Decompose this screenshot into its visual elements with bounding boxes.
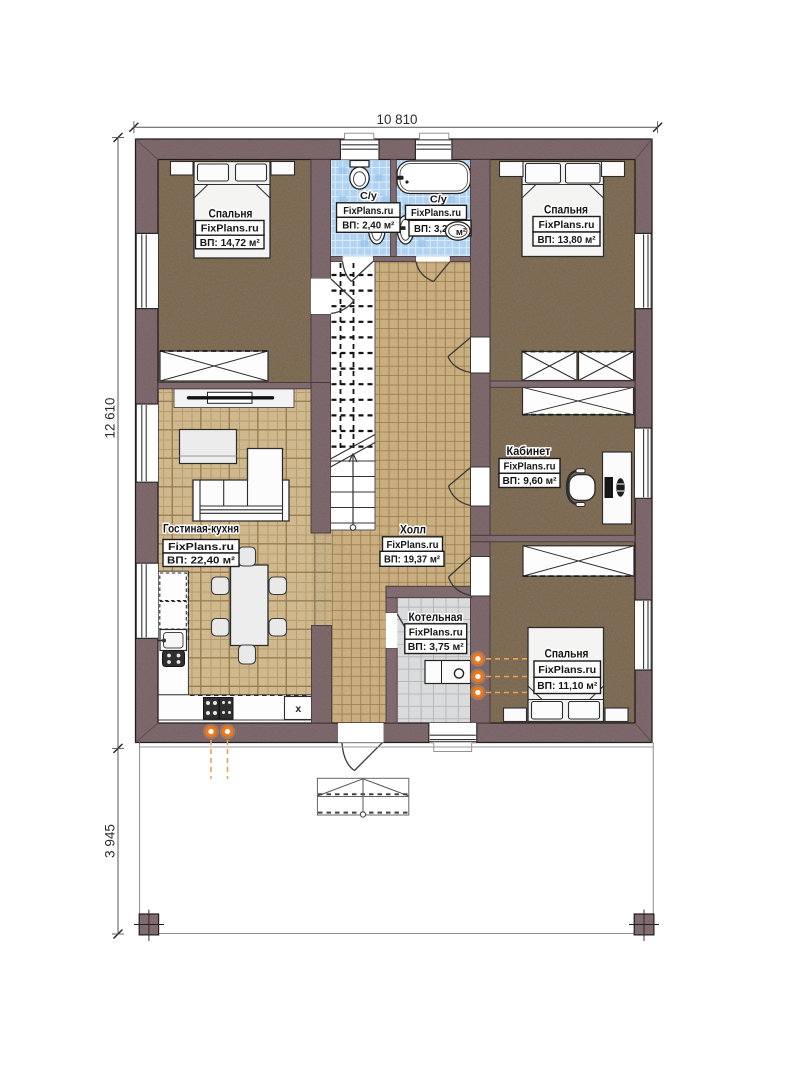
svg-text:x: x: [295, 703, 301, 715]
svg-text:FixPlans.ru: FixPlans.ru: [504, 462, 556, 473]
svg-text:FixPlans.ru: FixPlans.ru: [387, 540, 439, 551]
svg-text:С/у: С/у: [430, 194, 447, 206]
svg-text:3 945: 3 945: [103, 824, 118, 858]
svg-text:ВП: 22,40 м²: ВП: 22,40 м²: [167, 556, 236, 567]
svg-text:ВП: 11,10 м²: ВП: 11,10 м²: [537, 681, 598, 692]
svg-text:FixPlans.ru: FixPlans.ru: [168, 542, 234, 553]
svg-text:ВП: 9,60 м²: ВП: 9,60 м²: [503, 476, 558, 487]
svg-text:FixPlans.ru: FixPlans.ru: [539, 220, 595, 231]
svg-text:10 810: 10 810: [377, 112, 418, 127]
svg-text:С/у: С/у: [360, 190, 377, 202]
svg-text:Кабинет: Кабинет: [507, 446, 551, 458]
svg-text:Спальня: Спальня: [544, 203, 588, 217]
svg-text:ВП: 19,37 м²: ВП: 19,37 м²: [384, 555, 441, 566]
svg-text:FixPlans.ru: FixPlans.ru: [411, 208, 461, 219]
svg-text:12 610: 12 610: [103, 398, 118, 439]
svg-text:ВП: 13,80 м²: ВП: 13,80 м²: [538, 235, 597, 246]
svg-text:Спальня: Спальня: [545, 647, 589, 661]
svg-text:ВП: 3,75 м²: ВП: 3,75 м²: [408, 642, 465, 653]
svg-text:FixPlans.ru: FixPlans.ru: [409, 627, 463, 638]
svg-text:FixPlans.ru: FixPlans.ru: [201, 224, 259, 235]
svg-text:Холл: Холл: [400, 523, 426, 537]
svg-text:Котельная: Котельная: [409, 612, 463, 624]
svg-text:FixPlans.ru: FixPlans.ru: [538, 665, 596, 676]
svg-text:м²: м²: [456, 227, 466, 238]
svg-text:ВП: 2,40 м²: ВП: 2,40 м²: [342, 221, 395, 232]
svg-text:Гостиная-кухня: Гостиная-кухня: [163, 524, 239, 536]
svg-text:ВП: 14,72 м²: ВП: 14,72 м²: [200, 238, 261, 249]
svg-text:Спальня: Спальня: [209, 207, 253, 221]
svg-text:FixPlans.ru: FixPlans.ru: [343, 206, 393, 217]
